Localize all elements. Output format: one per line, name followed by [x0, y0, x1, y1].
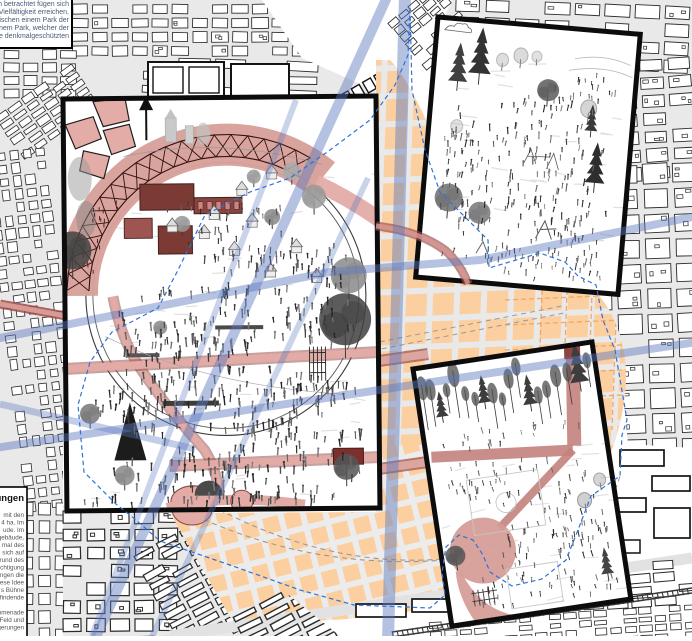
svg-text:ungen: ungen — [0, 493, 24, 504]
svg-text:ichtigung: ichtigung — [0, 565, 24, 572]
svg-text:mal des: mal des — [2, 542, 24, 549]
svg-text:ude. Im: ude. Im — [3, 527, 24, 534]
svg-text:. Die denkmalgeschützten: . Die denkmalgeschützten — [0, 33, 69, 40]
svg-text:gebäude,: gebäude, — [0, 535, 24, 542]
svg-text:rund des: rund des — [0, 557, 24, 564]
svg-text:mit den: mit den — [3, 512, 24, 519]
svg-text:an Vielfältigkeit erreichen,: an Vielfältigkeit erreichen, — [0, 9, 69, 16]
svg-text:tfindende: tfindende — [0, 595, 24, 602]
svg-text:gerungen: gerungen — [0, 625, 24, 632]
svg-text:4 ha. Im: 4 ha. Im — [1, 520, 24, 527]
svg-text:ungen die: ungen die — [0, 572, 24, 579]
svg-text:s Bühne: s Bühne — [1, 587, 25, 594]
svg-text:iese Idee: iese Idee — [0, 580, 24, 587]
svg-text:zwischen einem Park der: zwischen einem Park der — [0, 17, 70, 24]
svg-text:omenade: omenade — [0, 610, 24, 617]
svg-text:einem Park, welcher der: einem Park, welcher der — [0, 25, 70, 32]
svg-text:Feld und: Feld und — [0, 617, 24, 624]
svg-text:sich auf: sich auf — [2, 550, 24, 557]
svg-text:lich betrachtet fügen sich: lich betrachtet fügen sich — [0, 1, 69, 8]
